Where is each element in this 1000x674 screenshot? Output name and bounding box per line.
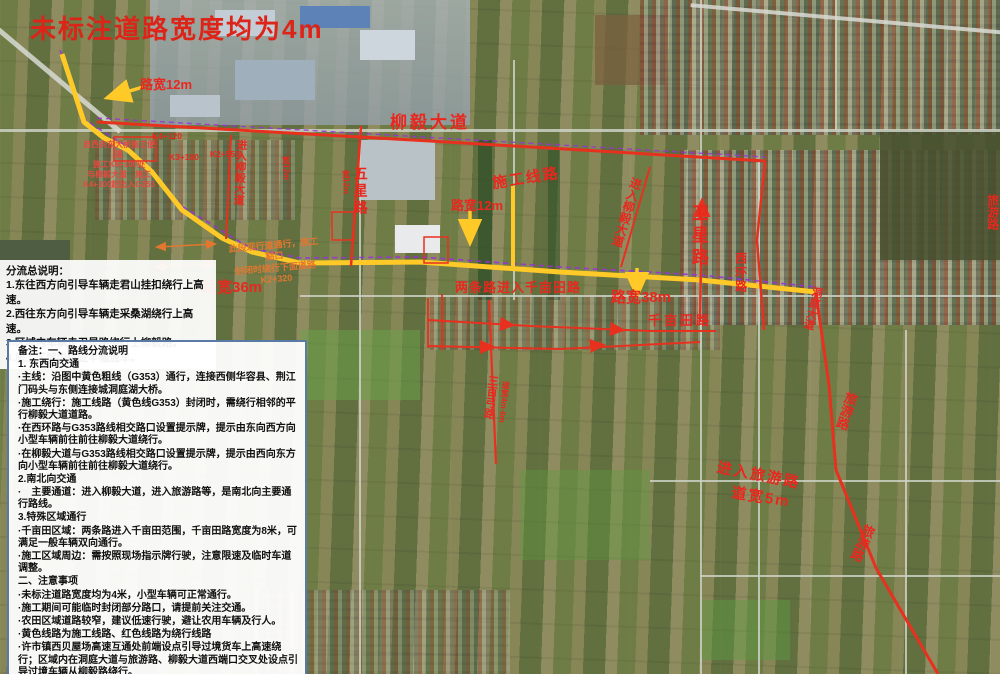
xihuan-road-label: 西环路 — [734, 252, 747, 294]
qianmutian-road-b — [428, 342, 700, 349]
road-width-label: 路宽12m — [451, 199, 503, 213]
road-width-label: 路宽38m — [611, 290, 671, 306]
remarks-line: 1. 东西向交通 — [18, 359, 298, 371]
detour-lvyou-line — [816, 293, 938, 674]
remarks-line: ·黄色线路为施工线路、红色线路为绕行线路 — [18, 629, 298, 641]
tourism-road-label: 旅游路 — [986, 194, 999, 230]
remarks-line: ·主线：沿图中黄色粗线（G353）通行，连接西侧华容县、荆江门码头与东侧连接城洞… — [18, 372, 298, 396]
nw-construction-note: 自西向东大桥施工便道 施工K4+100处 与柳毅大道 施工 K4+100起出入G… — [82, 140, 156, 190]
bypass-double-arrow — [158, 244, 214, 247]
map-title: 未标注道路宽度均为4m — [30, 16, 324, 43]
remarks-line: ·许市镇西贝屋场高速互通处前端设点引导过境货车上高速绕行；区域内在洞庭大道与旅游… — [18, 642, 298, 674]
construction-box — [332, 212, 354, 240]
road-width-label: 宽12m — [281, 156, 289, 180]
remarks-line: ·施工区域周边：需按照现场指示牌行驶，注意限速及临时车道调整。 — [18, 551, 298, 575]
two-roads-into-field-label: 两条路进入千亩田路 — [455, 281, 581, 295]
summary-line: 分流总说明： — [6, 264, 212, 278]
remarks-line: ·施工绕行：施工线路（黄色线G353）封闭时，需绕行相邻的平行柳毅大道道路。 — [18, 398, 298, 422]
nw-note-line: 自西向东大桥施工便道 — [82, 140, 156, 160]
detour-xihuan-line — [757, 161, 765, 330]
remarks-panel: 备注：一、路线分流说明 1. 东西向交通 ·主线：沿图中黄色粗线（G353）通行… — [7, 340, 307, 674]
road-width-label: 宽12m — [341, 170, 349, 194]
stake-label: K4+120 — [152, 132, 182, 141]
remarks-line: ·农田区域道路较窄，建议低速行驶，避让农用车辆及行人。 — [18, 616, 298, 628]
remarks-line: ·施工期间可能临时封闭部分路口，请提前关注交通。 — [18, 603, 298, 615]
summary-line: 2.西往东方向引导车辆走采桑湖绕行上高速。 — [6, 307, 212, 336]
remarks-line: · 主要通道：进入柳毅大道，进入旅游路等，是南北向主要通行路线。 — [18, 487, 298, 511]
remarks-line: 2.南北向交通 — [18, 474, 298, 486]
remarks-line: 3.特殊区域通行 — [18, 512, 298, 524]
liuyi-avenue-label: 柳毅大道 — [390, 114, 470, 132]
remarks-line: 备注：一、路线分流说明 — [18, 346, 298, 358]
remarks-line: ·千亩田区域：两条路进入千亩田范围，千亩田路宽度为8米，可满足一般车辆双向通行。 — [18, 526, 298, 550]
orange-detour-note: 此段现行道通行，施工豁口 封闭时绕行下面道路 K2+320 — [228, 236, 322, 289]
qianmutian-arrow — [610, 329, 622, 330]
nw-note-line: 与柳毅大道 施工 — [82, 170, 156, 180]
stake-label: K2+550 — [210, 150, 240, 159]
remarks-line: ·在西环路与G353路线相交路口设置提示牌，提示由东向西方向小型车辆前往前往柳毅… — [18, 423, 298, 447]
stake-label: K3+100 — [169, 153, 199, 162]
qianmutian-arrow — [500, 324, 512, 325]
yellow-arrow-west — [110, 87, 143, 97]
qianmutian-road-label: 千亩田路 — [648, 314, 712, 328]
remarks-line: ·在柳毅大道与G353路线相交路口设置提示牌，提示由西向东方向小型车辆前往前往柳… — [18, 449, 298, 473]
remarks-line: ·未标注道路宽度均为4米，小型车辆可正常通行。 — [18, 590, 298, 602]
wuxing-road-label: 五星路 — [353, 166, 368, 217]
nw-note-line: 施工K4+100处 — [82, 160, 156, 170]
nw-note-line: K4+100起出入G353 — [82, 180, 156, 190]
summary-line: 1.东往西方向引导车辆走君山挂扣绕行上高速。 — [6, 278, 212, 307]
remarks-line: 二、注意事项 — [18, 576, 298, 588]
weixing-road-label: 卫星路 — [689, 204, 707, 270]
road-width-label: 路宽12m — [140, 78, 192, 92]
map-canvas: 未标注道路宽度均为4m 路宽12m 柳毅大道 施工线路 路宽12m 路宽36m … — [0, 0, 1000, 674]
qianmutian-arrow — [590, 345, 602, 346]
